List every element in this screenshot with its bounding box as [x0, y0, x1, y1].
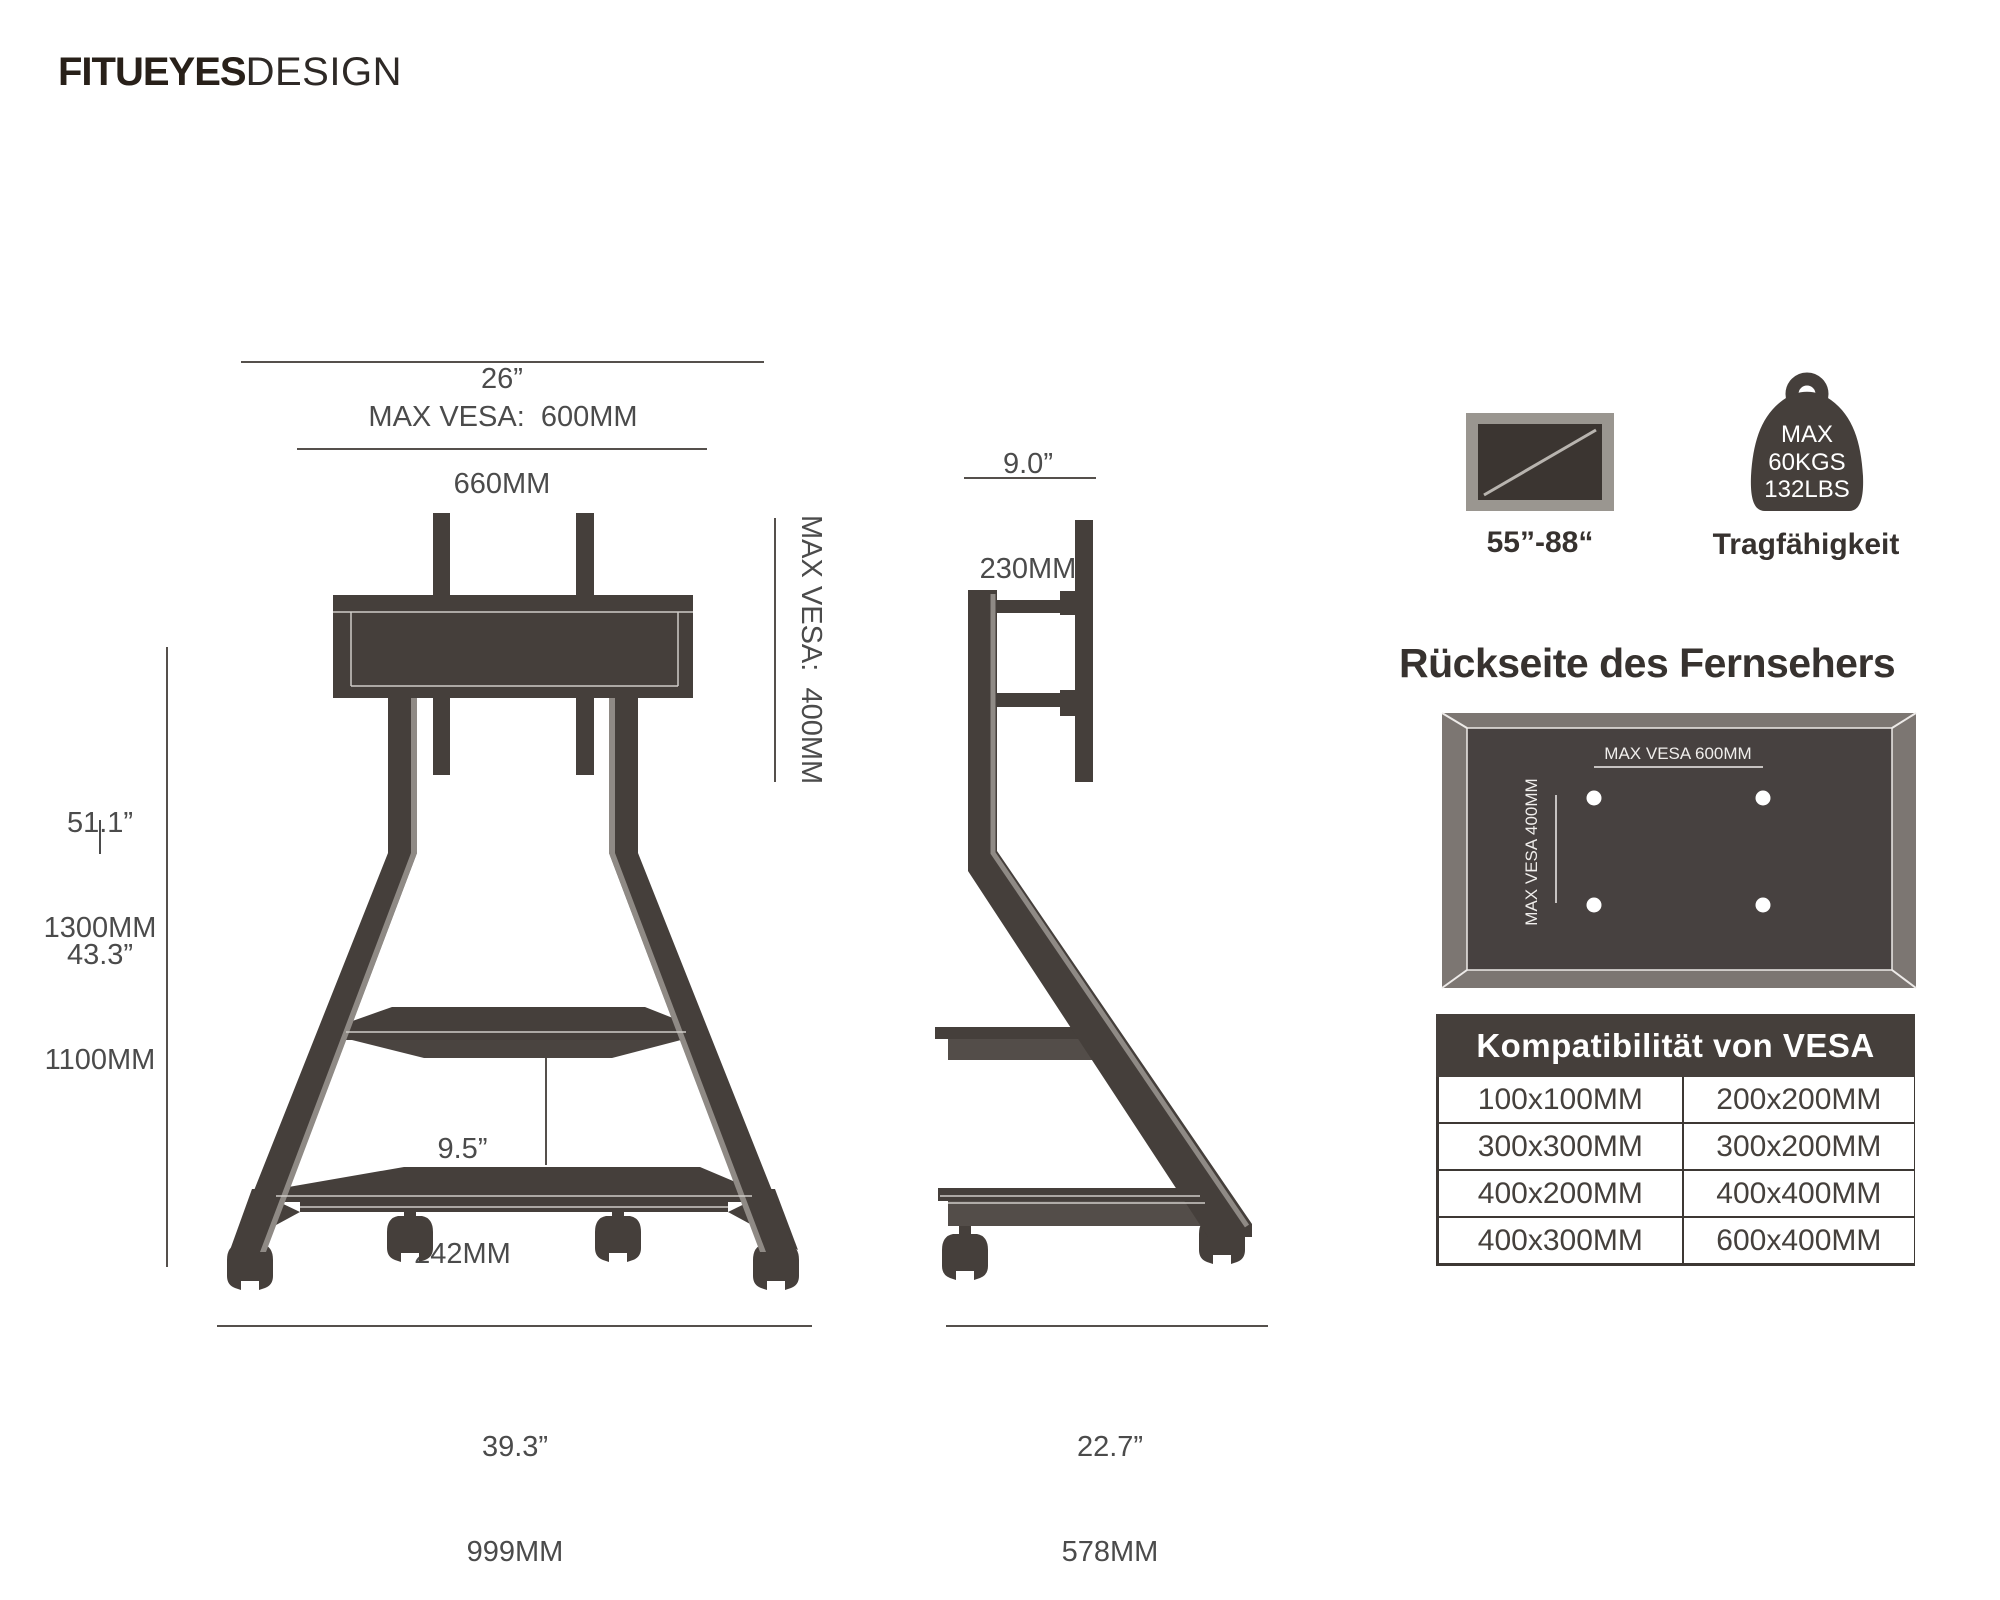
vesa-table-cell: 400x300MM — [1439, 1218, 1682, 1263]
vesa-table-cell: 400x200MM — [1439, 1171, 1682, 1216]
capacity-label: Tragfähigkeit — [1700, 528, 1912, 562]
vesa-v-label: MAX VESA 400MM — [1522, 778, 1541, 925]
tv-stand-side-view — [900, 450, 1360, 1360]
tv-stand-front-view — [150, 450, 860, 1360]
front-base-width-label: 39.3” 999MM — [365, 1360, 665, 1600]
vesa-table-header: Kompatibilität von VESA — [1436, 1014, 1915, 1077]
brand-suffix: DESIGN — [246, 50, 402, 94]
brand-name: FITUEYES — [58, 50, 246, 94]
capacity-lbs-text: 132LBS — [1764, 476, 1849, 503]
vesa-table-cell: 400x400MM — [1684, 1171, 1914, 1216]
vesa-h-label: MAX VESA 600MM — [1604, 744, 1751, 763]
vesa-table-cell: 600x400MM — [1684, 1218, 1914, 1263]
side-base-depth-label: 22.7” 578MM — [960, 1360, 1260, 1600]
front-caster-rear-left — [387, 1208, 433, 1262]
front-top-width-dimline — [241, 361, 764, 363]
capacity-kgs-text: 60KGS — [1768, 449, 1845, 476]
capacity-max-text: MAX — [1781, 421, 1833, 448]
front-max-vesa-h-label: MAX VESA: 600MM — [303, 400, 703, 435]
tv-back-panel: MAX VESA 600MM MAX VESA 400MM — [1436, 707, 1922, 994]
tv-size-icon — [1466, 413, 1614, 511]
front-height-range-tick — [99, 820, 101, 854]
vesa-compatibility-table: Kompatibilität von VESA 100x100MM 200x20… — [1436, 1014, 1915, 1266]
brand-logo: FITUEYESDESIGN — [58, 50, 402, 95]
vesa-table-cell: 100x100MM — [1439, 1077, 1682, 1122]
front-caster-rear-right — [595, 1208, 641, 1262]
tv-size-label: 55”-88“ — [1466, 526, 1614, 560]
spec-sheet: FITUEYESDESIGN 26” 660MM MAX VESA: 600MM… — [0, 0, 2000, 1600]
vesa-table-cell: 300x300MM — [1439, 1124, 1682, 1169]
side-caster-front — [942, 1226, 988, 1280]
weight-capacity-icon: MAX 60KGS 132LBS — [1731, 370, 1881, 525]
tv-back-title: Rückseite des Fernsehers — [1399, 640, 1944, 687]
vesa-table-cell: 200x200MM — [1684, 1077, 1914, 1122]
vesa-table-cell: 300x200MM — [1684, 1124, 1914, 1169]
